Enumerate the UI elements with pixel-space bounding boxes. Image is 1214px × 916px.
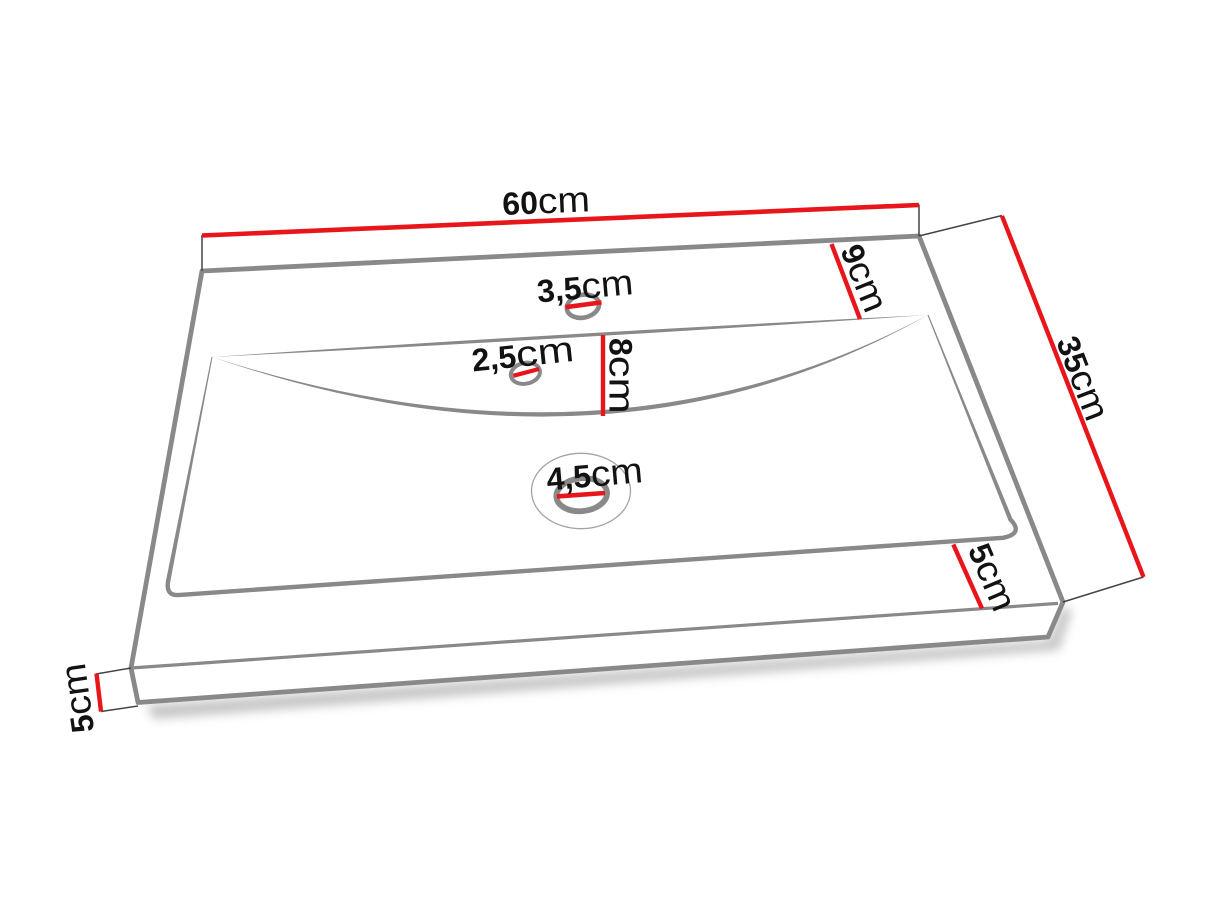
- svg-text:60cm: 60cm: [501, 178, 590, 223]
- svg-text:8cm: 8cm: [602, 338, 643, 414]
